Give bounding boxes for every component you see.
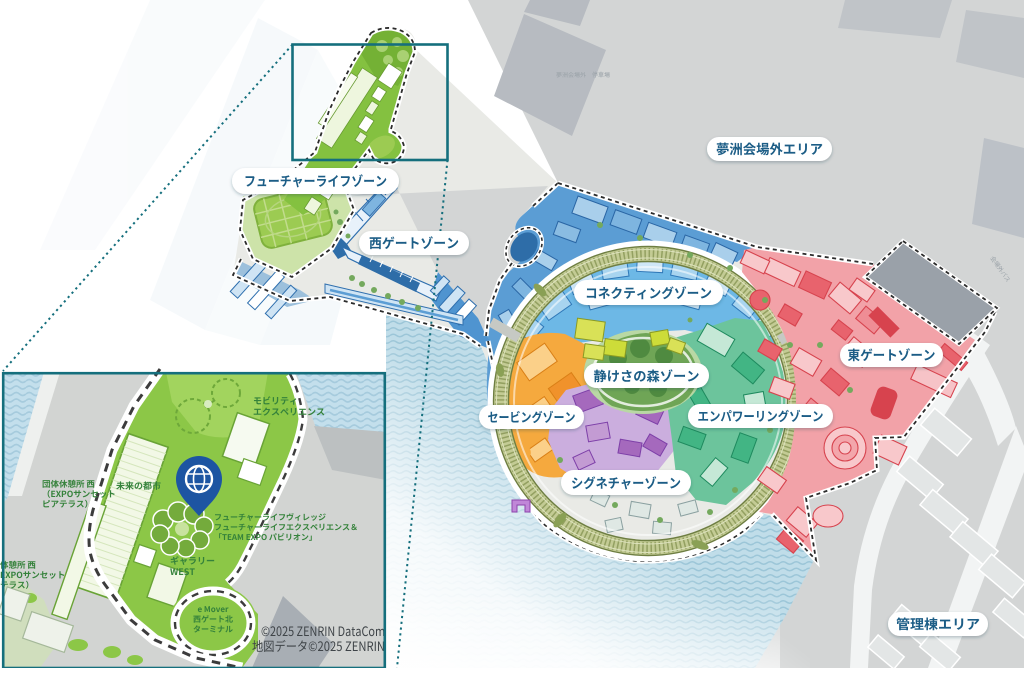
svg-text:静けさの森ゾーン: 静けさの森ゾーン <box>594 365 700 385</box>
svg-text:WEST: WEST <box>170 565 195 578</box>
svg-text:夢洲会場外 停車場: 夢洲会場外 停車場 <box>556 70 610 79</box>
svg-text:東ゲートゾーン: 東ゲートゾーン <box>848 344 936 364</box>
svg-text:コネクティングゾーン: コネクティングゾーン <box>585 282 712 302</box>
svg-text:シグネチャーゾーン: シグネチャーゾーン <box>571 472 681 492</box>
svg-text:セービングゾーン: セービングゾーン <box>488 407 576 426</box>
svg-text:「TEAM EXPO パビリオン」: 「TEAM EXPO パビリオン」 <box>214 532 317 543</box>
svg-text:ピアテラス）: ピアテラス） <box>42 498 93 510</box>
svg-text:未来の都市: 未来の都市 <box>116 479 161 492</box>
svg-text:テラス）: テラス） <box>0 579 34 591</box>
svg-text:地図データ©2025 ZENRIN: 地図データ©2025 ZENRIN <box>252 636 385 655</box>
svg-text:管理棟エリア: 管理棟エリア <box>896 613 980 633</box>
svg-text:エンパワーリングゾーン: エンパワーリングゾーン <box>698 406 824 425</box>
svg-text:フューチャーライフゾーン: フューチャーライフゾーン <box>244 170 387 190</box>
svg-text:エクスペリエンス: エクスペリエンス <box>253 405 325 418</box>
svg-text:ターミナル: ターミナル <box>193 624 233 635</box>
svg-text:夢洲会場外エリア: 夢洲会場外エリア <box>716 138 823 158</box>
svg-text:西ゲートゾーン: 西ゲートゾーン <box>369 232 459 252</box>
